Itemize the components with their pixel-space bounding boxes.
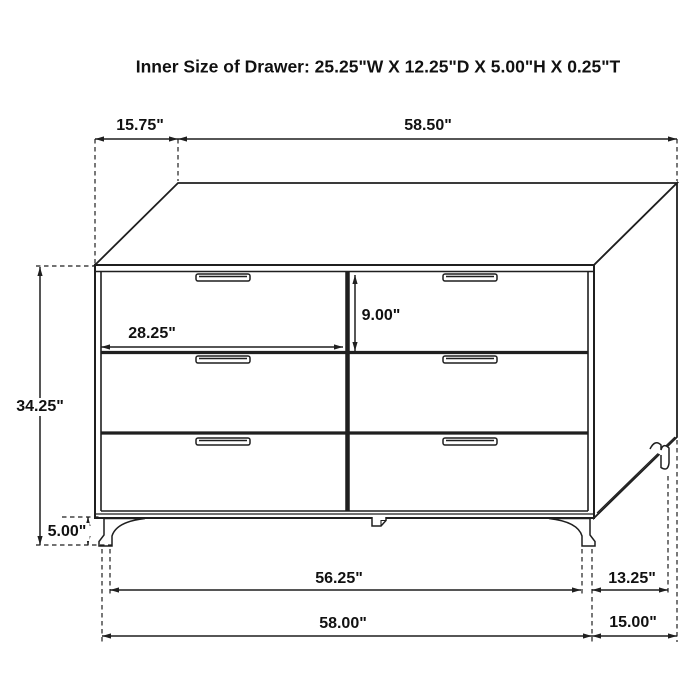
handle-bottom-right-icon (443, 438, 497, 445)
dim-label-base-overall-depth: 15.00" (609, 615, 657, 631)
dresser-front-face (95, 265, 594, 518)
dim-label-overall-height: 34.25" (13, 398, 67, 416)
center-foot (372, 517, 386, 526)
dimension-diagram: Inner Size of Drawer: 25.25"W X 12.25"D … (0, 0, 700, 700)
dim-label-top-width: 58.50" (404, 118, 452, 134)
dim-label-base-side-depth: 13.25" (608, 571, 656, 587)
handle-top-left-icon (196, 274, 250, 281)
front-left-leg (99, 519, 145, 547)
dim-label-top-depth-left: 15.75" (116, 118, 164, 134)
handle-middle-right-icon (443, 356, 497, 363)
dim-label-leg-height: 5.00" (45, 523, 90, 541)
dim-label-drawer-front-height: 9.00" (362, 308, 401, 324)
front-right-leg (549, 519, 595, 547)
dim-label-base-overall-width: 58.00" (319, 616, 367, 632)
dim-label-base-inner-width: 56.25" (315, 571, 363, 587)
handle-middle-left-icon (196, 356, 250, 363)
handle-top-right-icon (443, 274, 497, 281)
dim-label-drawer-front-width: 28.25" (128, 326, 176, 342)
dresser-top-surface (95, 183, 677, 269)
page-title: Inner Size of Drawer: 25.25"W X 12.25"D … (136, 57, 621, 78)
dresser-line-art (0, 0, 700, 700)
handle-bottom-left-icon (196, 438, 250, 445)
